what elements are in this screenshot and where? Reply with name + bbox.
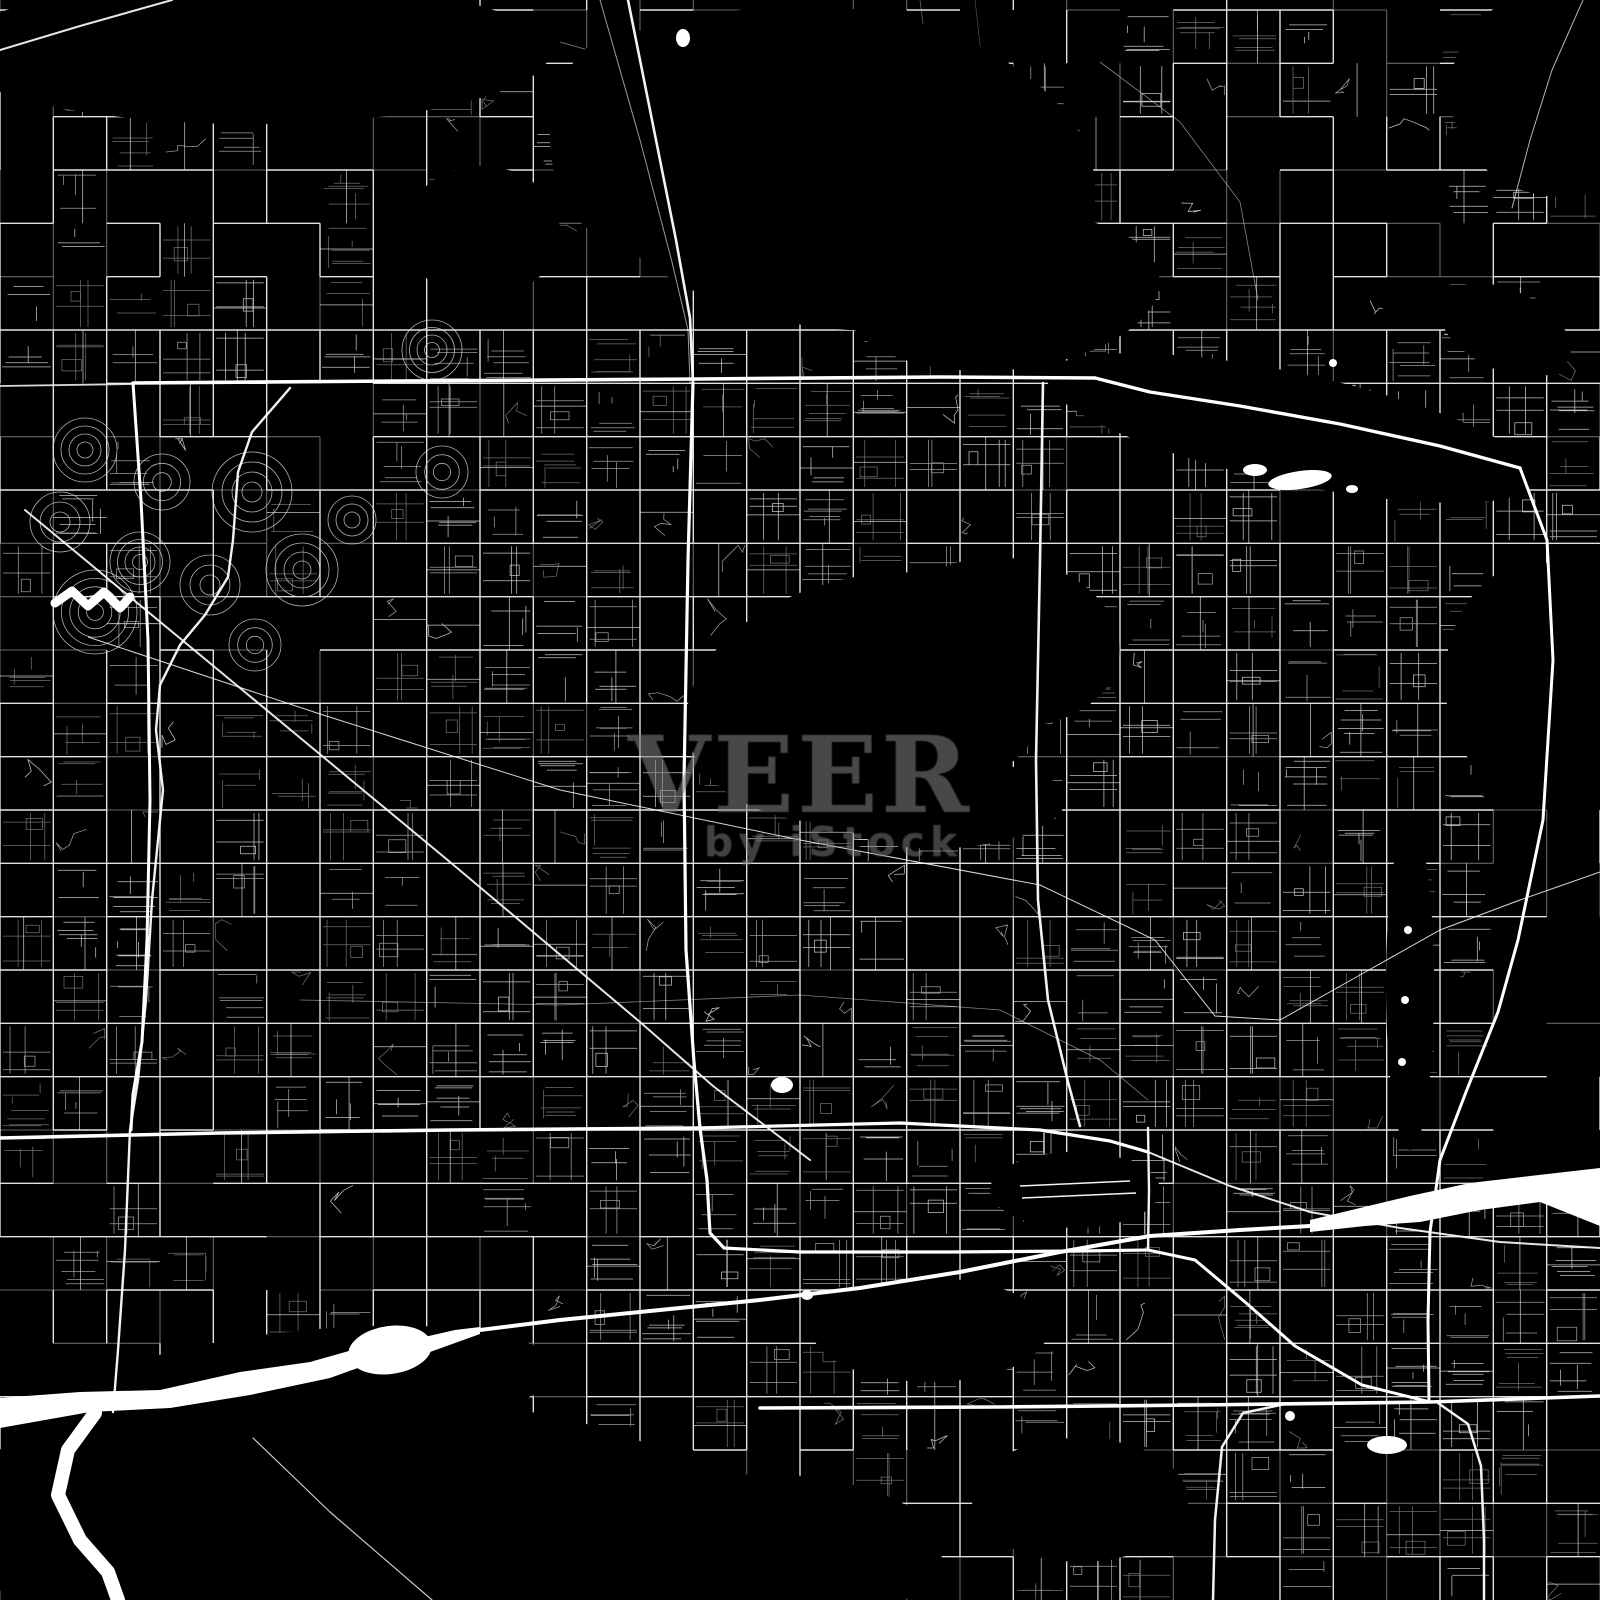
lake: [771, 1077, 793, 1093]
lake: [1404, 926, 1412, 934]
lake: [1243, 464, 1267, 476]
lake: [1285, 1411, 1295, 1421]
terrain-void: [550, 30, 714, 246]
lake: [676, 29, 690, 47]
stock-image-preview: VEER by iStock: [0, 0, 1600, 1600]
lake: [801, 1290, 813, 1300]
phoenix-street-map: VEER by iStock: [0, 0, 1600, 1600]
highway-sr143: [1148, 1128, 1149, 1250]
terrain-void: [404, 166, 560, 298]
terrain-void: [1386, 820, 1434, 1150]
lake: [1401, 996, 1409, 1004]
terrain-void: [990, 1152, 1160, 1228]
lake: [1398, 1058, 1406, 1066]
terrain-void: [972, 1438, 1188, 1562]
terrain-void: [812, 1278, 1048, 1382]
watermark-byline-text: by iStock: [704, 818, 962, 866]
lake: [1329, 359, 1337, 367]
lake: [1346, 485, 1358, 493]
lake: [1367, 1436, 1407, 1454]
